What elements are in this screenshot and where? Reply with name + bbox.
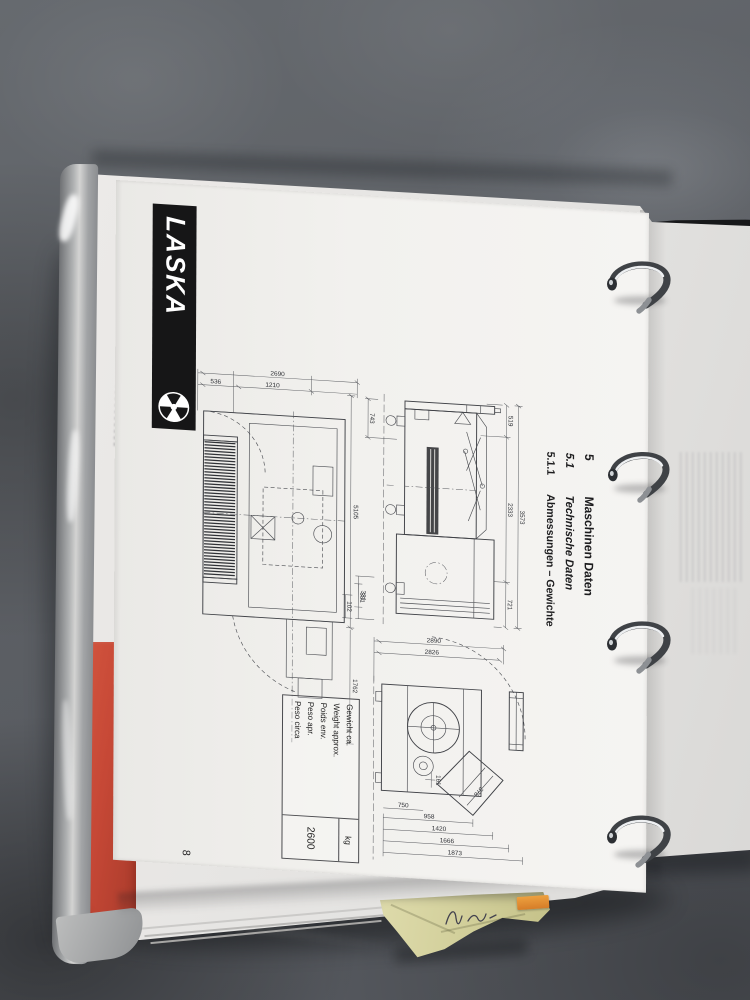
dimension-label: 536 [210,378,221,386]
weight-label-fr: Poids env. [316,702,329,817]
binder-ring [600,614,678,674]
weight-table: Gewicht ca. Weight approx. Poids env. Pe… [281,694,359,863]
weight-unit-cell: kg [338,819,358,863]
dimension-label: 2826 [425,649,440,657]
laska-logo-text: LASKA [157,204,191,391]
dimension-label: 2333 [506,503,513,518]
subsubsection-title: Abmessungen – Gewichte [544,494,557,627]
sleeve-bottom-corner [55,907,146,965]
subsection-title: Technische Daten [563,495,575,591]
laska-logo-emblem-icon [156,389,192,426]
dimension-label: 331 [359,590,366,601]
dimension-label: 958 [424,813,435,821]
dimension-label: 1210 [265,382,280,390]
weight-label-es: Peso apr. [304,701,317,816]
weight-table-labels: Gewicht ca. Weight approx. Poids env. Pe… [283,695,359,820]
subsubsection-number: 5.1.1 [544,451,556,494]
orange-index-tab [517,895,550,910]
dimension-label: 750 [398,802,409,810]
binder-ring [600,254,678,314]
section-number: 5 [582,454,596,497]
section-headings: 5 Maschinen Daten 5.1 Technische Daten 5… [536,451,596,745]
dimension-label: 721 [506,599,513,610]
section-title: Maschinen Daten [582,496,596,596]
weight-label-it: Peso circa [291,701,304,816]
dimension-label: 519 [507,416,514,427]
binder-ring [600,444,678,505]
page-number: 8 [180,849,192,856]
dimension-label: 2690 [270,370,285,378]
binder-ring [599,807,679,870]
dimension-label: 1666 [440,837,455,845]
manual-page: LASKA 5 Maschinen Daten 5.1 Technische D… [113,180,649,893]
weight-label-de: Gewicht ca. [342,704,355,819]
dimension-label: 3573 [518,510,525,525]
subsection-number: 5.1 [563,452,575,495]
subsection-heading: 5.1 Technische Daten [562,452,575,743]
laska-logo: LASKA [152,204,197,431]
ghost-print-showthrough [692,588,738,654]
dimension-label: 161 [434,775,441,786]
dimension-label: 2890 [427,637,442,645]
weight-label-en: Weight approx. [329,703,342,818]
dimension-label: 1762 [351,679,358,694]
dimension-label: 1873 [448,849,463,857]
ghost-print-showthrough [680,452,742,582]
weight-table-value-column: kg 2600 [282,815,358,862]
section-heading: 5 Maschinen Daten [581,454,596,745]
dimension-label: 1420 [432,825,447,833]
desk-photo: LASKA 5 Maschinen Daten 5.1 Technische D… [0,0,750,1000]
dimension-label: 5105 [352,505,359,520]
subsubsection-heading: 5.1.1 Abmessungen – Gewichte [543,451,556,742]
weight-value-cell: 2600 [282,815,338,861]
